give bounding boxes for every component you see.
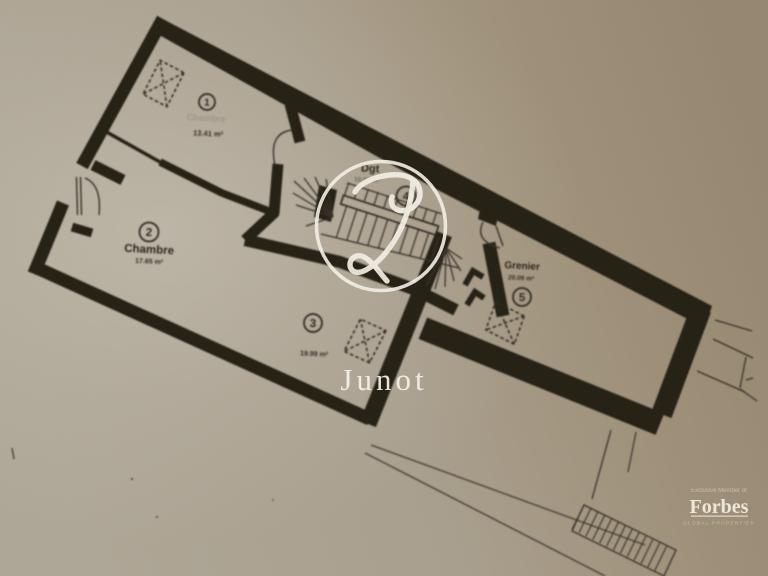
svg-text:Junot: Junot [340,362,427,397]
svg-text:13.41 m²: 13.41 m² [193,128,224,139]
svg-text:GLOBAL PROPERTIES: GLOBAL PROPERTIES [683,521,755,527]
svg-text:3: 3 [309,318,316,330]
svg-text:Forbes: Forbes [690,496,749,518]
svg-text:Grenier: Grenier [504,260,540,273]
svg-text:5: 5 [518,292,526,304]
svg-text:20.09 m²: 20.09 m² [508,274,535,282]
svg-text:Chambre: Chambre [186,112,225,124]
svg-text:2: 2 [145,227,152,239]
svg-text:Exclusive Member of: Exclusive Member of [691,488,747,494]
svg-text:19.99 m²: 19.99 m² [300,350,329,358]
svg-text:1: 1 [204,97,211,108]
svg-text:17.65 m²: 17.65 m² [135,258,164,266]
